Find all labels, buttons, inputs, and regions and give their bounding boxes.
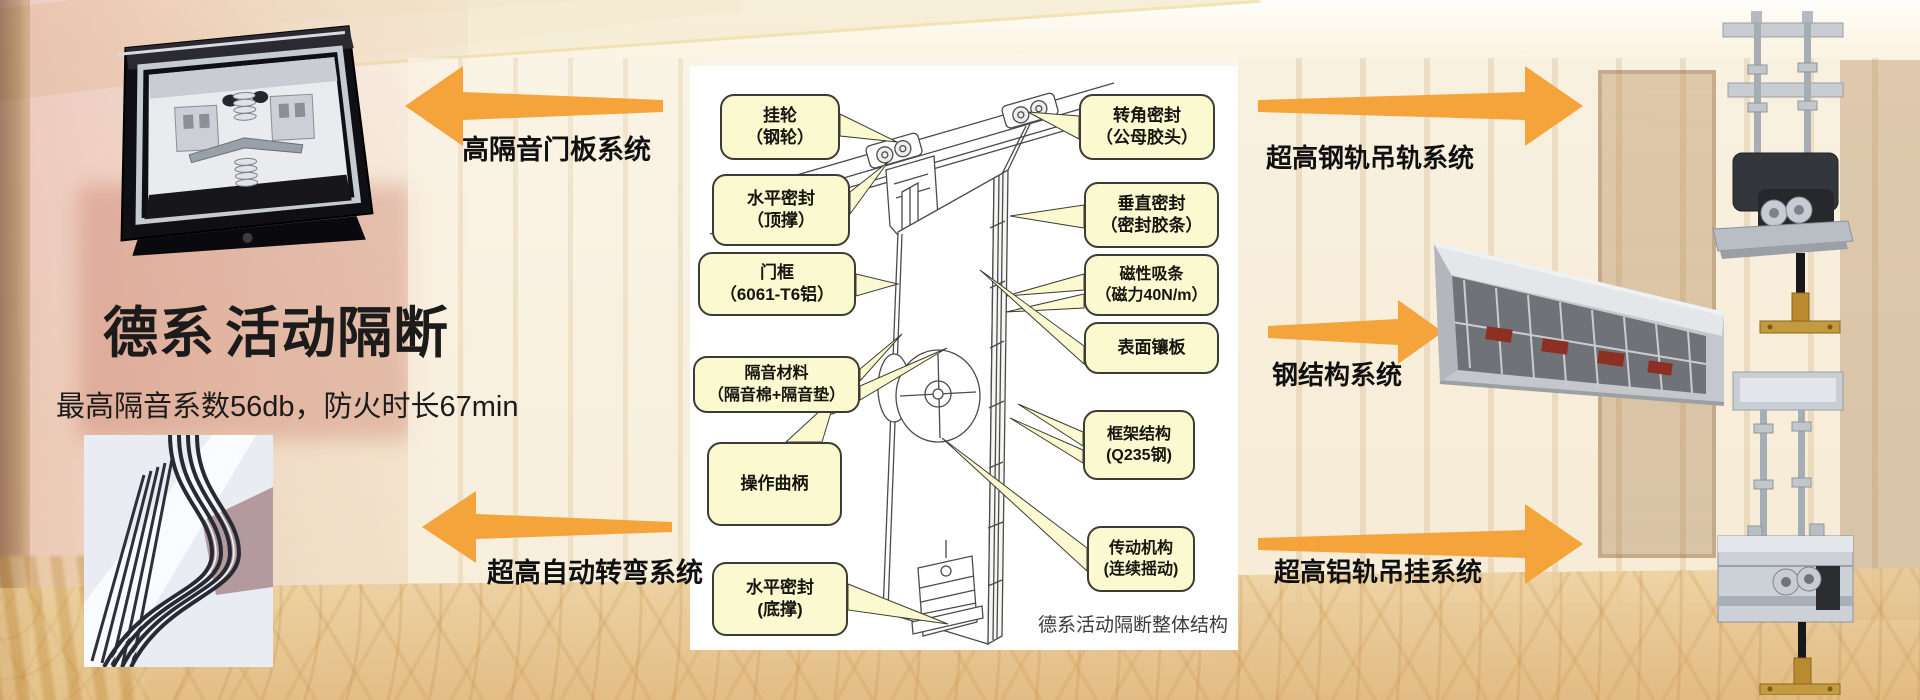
callout-text: （密封胶条） [1101,215,1203,237]
diagram-caption: 德系活动隔断整体结构 [1038,610,1228,637]
callout-magnetic-strip: 磁性吸条 （磁力40N/m） [1084,254,1219,316]
photo-steel-rail-hanger [1698,5,1858,335]
photo-steel-truss [1434,232,1734,407]
brand-title-secondary: 活动隔断 [225,302,449,364]
callout-text: (Q235钢) [1106,445,1172,466]
callout-operating-crank: 操作曲柄 [707,442,842,526]
callout-top-seal: 水平密封 （顶撑） [712,174,850,246]
callout-vertical-seal: 垂直密封 （密封胶条） [1084,182,1219,248]
callout-hanging-wheel: 挂轮 （钢轮） [720,94,840,160]
callout-text: 磁性吸条 [1119,264,1183,285]
callout-text: （钢轮） [746,127,814,149]
callout-bottom-seal: 水平密封 (底撑) [712,562,848,636]
photo-aluminum-rail-hanger [1698,360,1858,695]
label-aluminum-rail-system: 超高铝轨吊挂系统 [1274,552,1482,589]
callout-text: 操作曲柄 [741,473,809,495]
label-steel-structure-system: 钢结构系统 [1272,355,1402,392]
callout-acoustic-material: 隔音材料 （隔音棉+隔音垫） [693,356,860,413]
label-door-panel-system: 高隔音门板系统 [462,128,651,167]
photo-door-panel-mechanism [92,2,397,257]
callout-text: 传动机构 [1109,538,1173,559]
callout-frame-structure: 框架结构 (Q235钢) [1083,410,1195,480]
callout-text: (底撑) [757,599,802,621]
callout-text: （顶撑） [747,210,815,232]
callout-door-frame: 门框 （6061-T6铝） [698,252,856,316]
callout-text: 转角密封 [1113,105,1181,127]
callout-text: 隔音材料 [744,363,808,384]
callout-surface-panel: 表面镶板 [1084,322,1219,374]
callout-text: 垂直密封 [1118,193,1186,215]
callout-text: 表面镶板 [1118,337,1186,359]
callout-text: 挂轮 [763,105,797,127]
brand-title: 德系活动隔断 [103,303,449,364]
callout-text: （6061-T6铝） [720,284,834,306]
callout-transmission: 传动机构 (连续摇动) [1087,526,1195,592]
callout-text: 水平密封 [747,188,815,210]
presentation-canvas: 德系活动隔断 最高隔音系数56db，防火时长67min [0,0,1920,700]
photo-curved-track [84,435,273,667]
callout-text: (连续摇动) [1104,559,1179,580]
brand-title-primary: 德系 [103,302,215,364]
callout-text: （公母胶头） [1096,127,1198,149]
callout-text: （磁力40N/m） [1095,285,1207,306]
brand-subtitle: 最高隔音系数56db，防火时长67min [56,383,519,425]
callout-text: 门框 [760,262,794,284]
callout-text: （隔音棉+隔音垫） [708,385,845,406]
callout-text: 框架结构 [1107,424,1171,445]
callout-text: 水平密封 [746,577,814,599]
label-auto-turning-system: 超高自动转弯系统 [487,551,703,590]
arrow-right-top-icon [1258,60,1583,150]
structure-diagram-panel: 挂轮 （钢轮） 水平密封 （顶撑） 门框 （6061-T6铝） 隔音材料 （隔音… [690,66,1238,650]
callout-corner-seal: 转角密封 （公母胶头） [1079,94,1215,160]
label-steel-rail-system: 超高钢轨吊轨系统 [1266,138,1474,175]
